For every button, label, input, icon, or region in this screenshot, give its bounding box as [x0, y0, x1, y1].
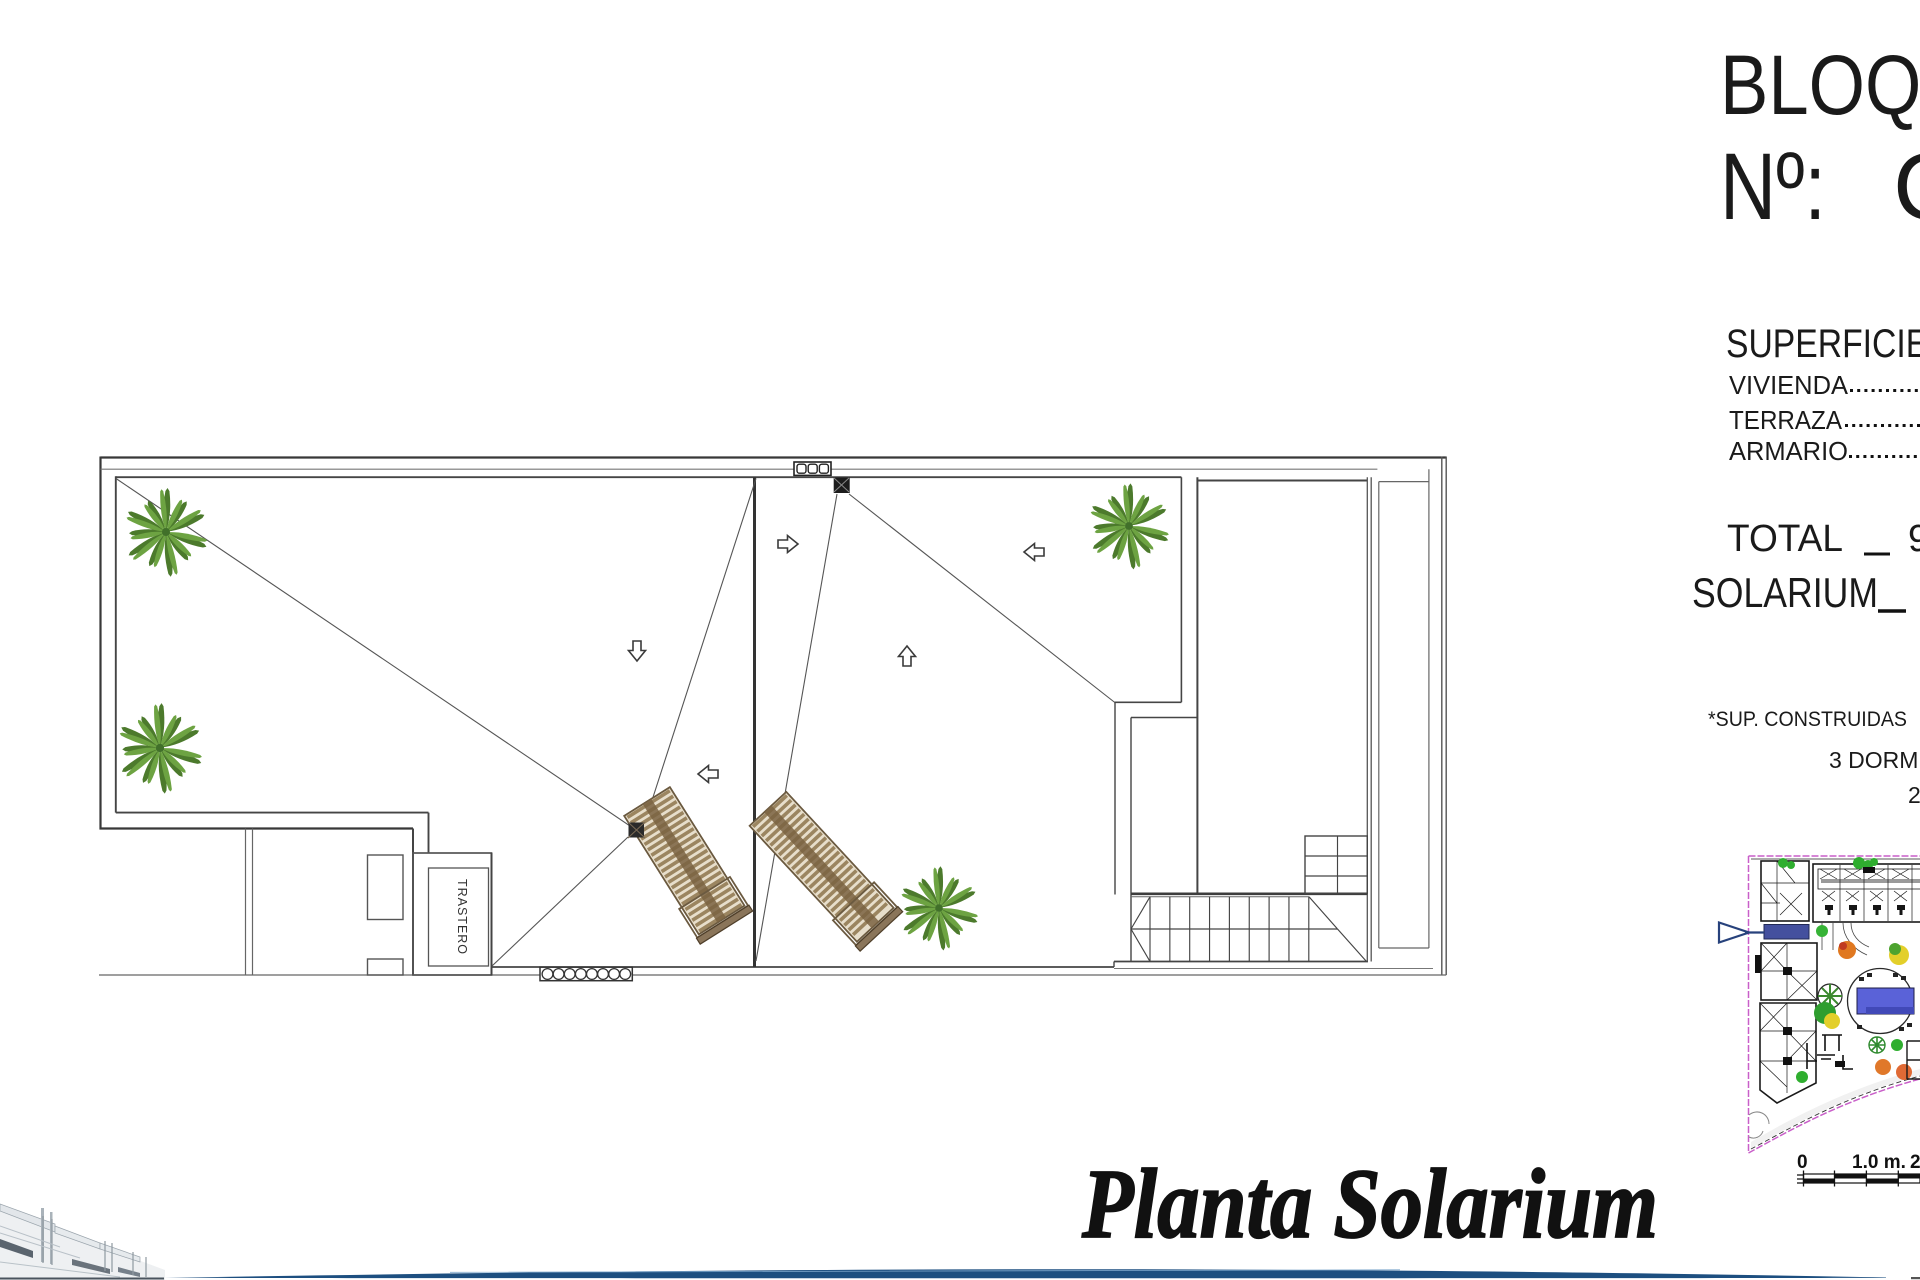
svg-text:2 BAÑOS: 2 BAÑOS — [1908, 782, 1920, 808]
svg-text:TERRAZA: TERRAZA — [1729, 405, 1843, 435]
svg-text:TRASTERO: TRASTERO — [455, 879, 469, 955]
svg-text:Nº:: Nº: — [1720, 134, 1826, 240]
svg-text:1.0 m.: 1.0 m. — [1852, 1152, 1906, 1173]
svg-text:3 DORMITORIOS: 3 DORMITORIOS — [1829, 747, 1920, 773]
svg-text:0: 0 — [1797, 1152, 1808, 1173]
svg-text:SUPERFICIES ÚTILES: SUPERFICIES ÚTILES — [1726, 321, 1920, 366]
svg-text:ARMARIO: ARMARIO — [1729, 436, 1848, 466]
svg-text:2: 2 — [1910, 1152, 1920, 1173]
svg-text:Planta Solarium: Planta Solarium — [1081, 1148, 1658, 1259]
svg-text:C: C — [1893, 134, 1920, 240]
svg-text:9: 9 — [1908, 518, 1920, 560]
svg-text:TOTAL: TOTAL — [1727, 518, 1843, 560]
svg-text:VIVIENDA: VIVIENDA — [1729, 370, 1849, 400]
svg-text:*SUP. CONSTRUIDAS: *SUP. CONSTRUIDAS — [1708, 707, 1907, 731]
svg-text:BLOQUE: BLOQUE — [1720, 38, 1920, 132]
svg-text:SOLARIUM: SOLARIUM — [1692, 569, 1878, 616]
